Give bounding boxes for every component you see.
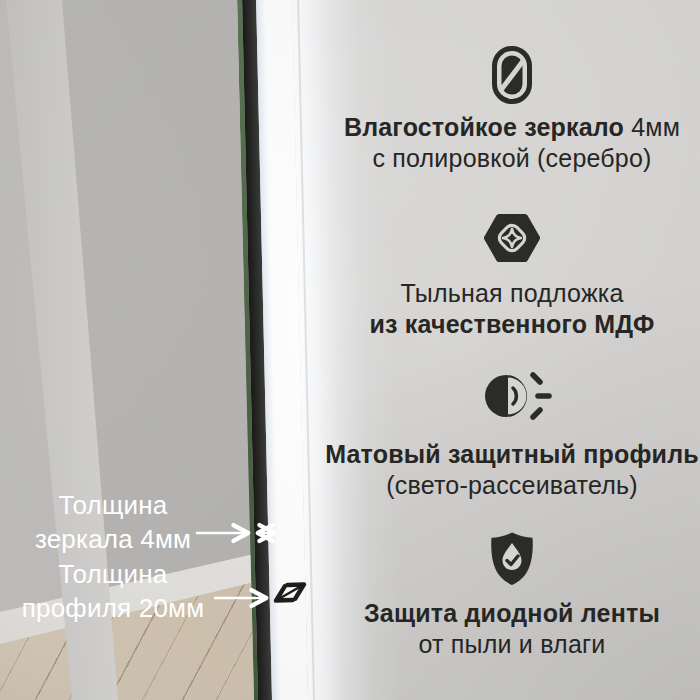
feature-text-line: Матовый защитный профиль xyxy=(322,439,700,470)
feature-moisture-resistant-mirror: Влагостойкое зеркало 4мм с полировкой (с… xyxy=(322,46,700,174)
mdf-backing-icon xyxy=(484,210,540,266)
feature-text: с полировкой (серебро) xyxy=(372,144,651,172)
feature-led-protection: Защита диодной ленты от пыли и влаги xyxy=(322,530,700,660)
callout-line: профиля 20мм xyxy=(8,591,218,625)
feature-text-line: (свето-рассеиватель) xyxy=(322,470,700,501)
feature-text-line: от пыли и влаги xyxy=(322,629,700,660)
feature-mdf-backing: Тыльная подложка из качественного МДФ xyxy=(322,210,700,340)
callout-profile-thickness: Толщина профиля 20мм xyxy=(8,557,218,625)
feature-text-line: Влагостойкое зеркало 4мм xyxy=(322,112,700,143)
mirror-icon xyxy=(492,46,532,104)
shield-protection-icon xyxy=(488,530,536,586)
feature-text: Тыльная подложка xyxy=(400,279,623,307)
feature-text-line: из качественного МДФ xyxy=(322,309,700,340)
feature-matte-profile: Матовый защитный профиль (свето-рассеива… xyxy=(322,367,700,501)
feature-text-bold: Влагостойкое зеркало xyxy=(344,113,624,141)
feature-text-bold: Защита диодной ленты xyxy=(364,599,660,627)
light-diffuser-icon xyxy=(482,367,556,425)
product-infographic: Толщина зеркала 4мм Толщина профиля 20мм… xyxy=(0,0,700,700)
feature-text: 4мм xyxy=(624,113,680,141)
callout-line: Толщина xyxy=(8,557,218,591)
callout-line: Толщина xyxy=(8,488,218,522)
feature-text-line: Защита диодной ленты xyxy=(322,598,700,629)
feature-text: от пыли и влаги xyxy=(419,630,606,658)
feature-text-line: Тыльная подложка xyxy=(322,278,700,309)
callout-mirror-thickness: Толщина зеркала 4мм xyxy=(8,488,218,556)
callout-line: зеркала 4мм xyxy=(8,522,218,556)
feature-text: (свето-рассеиватель) xyxy=(386,471,638,499)
feature-text-bold: Матовый защитный профиль xyxy=(325,440,699,468)
feature-text-line: с полировкой (серебро) xyxy=(322,143,700,174)
feature-text-bold: из качественного МДФ xyxy=(369,310,654,338)
